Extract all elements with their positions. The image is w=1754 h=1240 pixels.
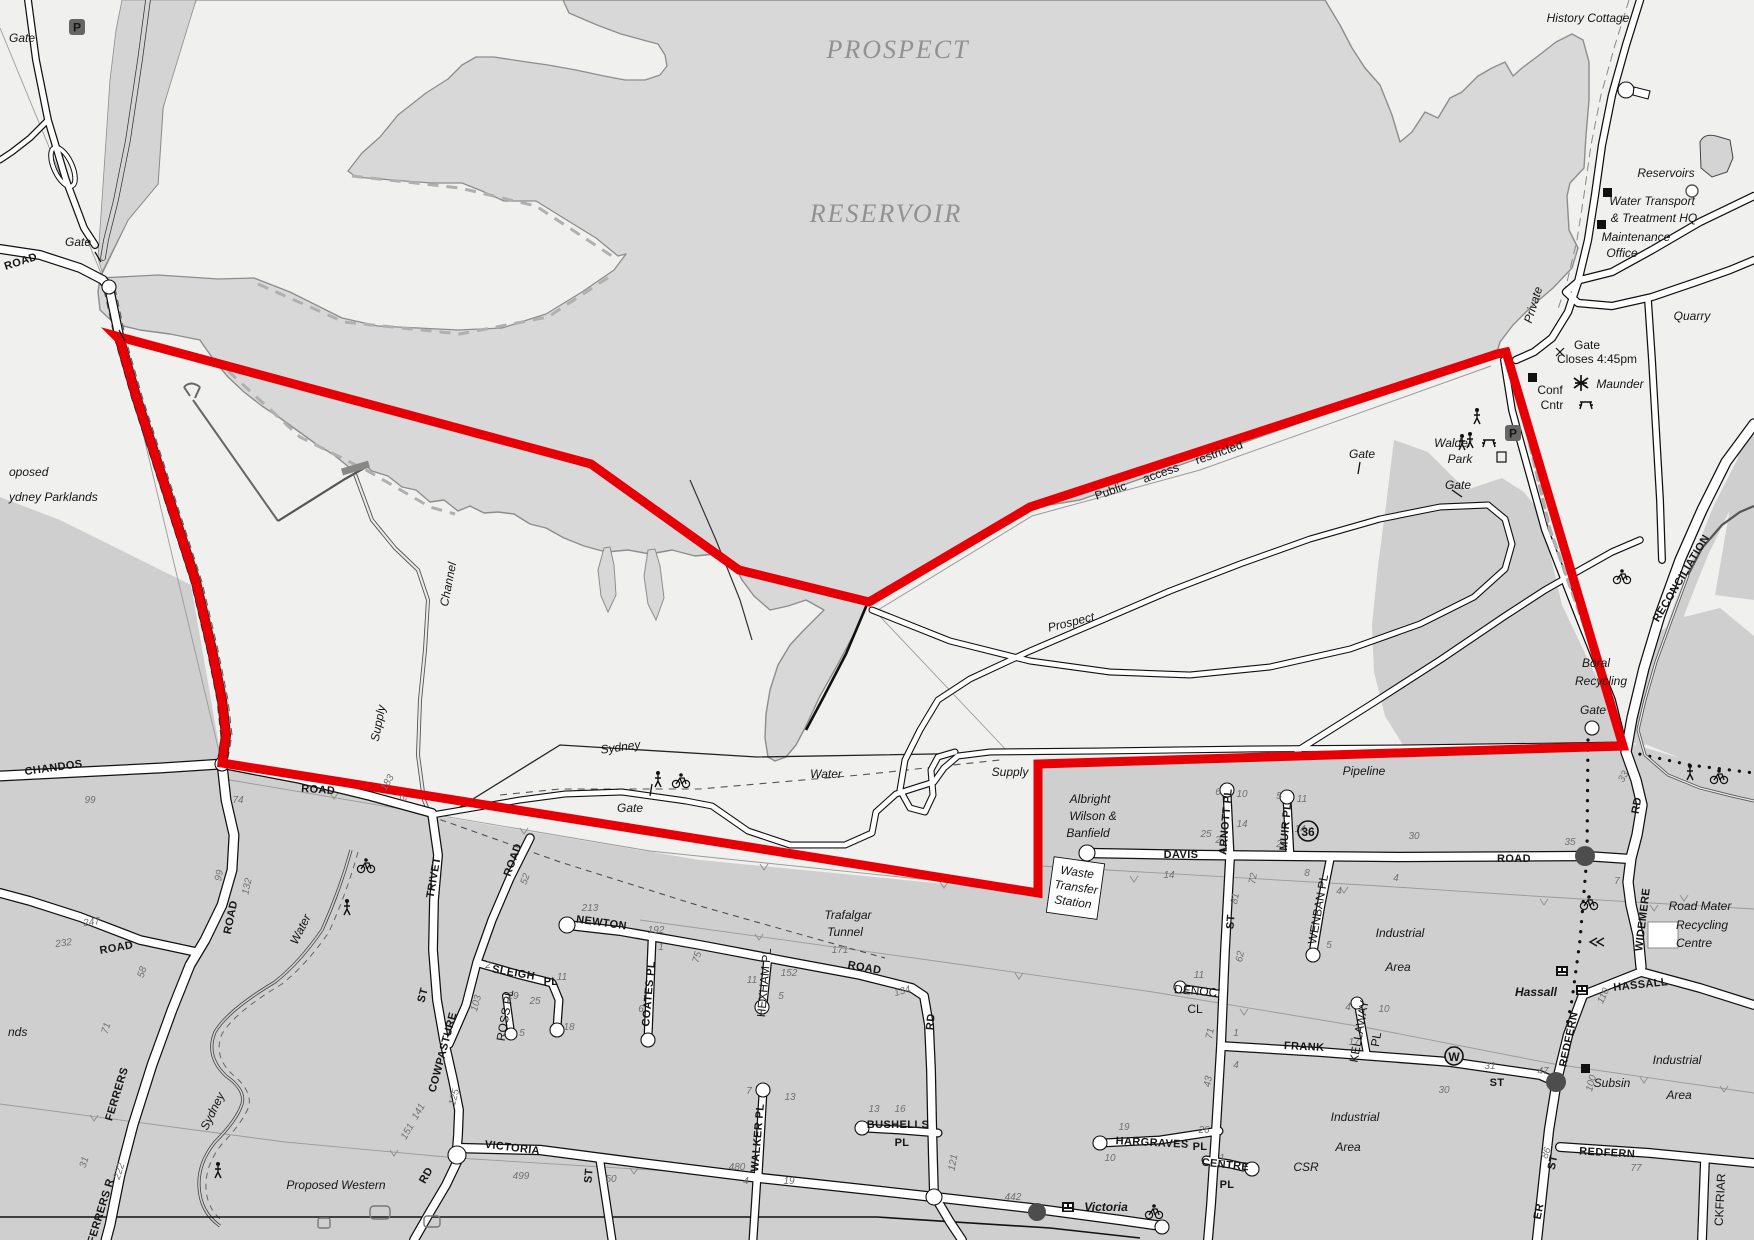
svg-text:ST: ST bbox=[1490, 1077, 1505, 1089]
svg-text:19: 19 bbox=[1118, 1122, 1130, 1133]
svg-text:10: 10 bbox=[1378, 1004, 1390, 1015]
svg-text:Park: Park bbox=[1448, 452, 1474, 466]
svg-text:nds: nds bbox=[8, 1025, 27, 1039]
svg-text:36: 36 bbox=[1301, 825, 1315, 839]
svg-text:11: 11 bbox=[1194, 970, 1204, 981]
svg-text:13: 13 bbox=[784, 1092, 796, 1103]
svg-text:Gate: Gate bbox=[1580, 703, 1606, 717]
svg-text:Maunder: Maunder bbox=[1596, 377, 1644, 391]
svg-text:Office: Office bbox=[1606, 246, 1638, 260]
svg-text:Proposed Western: Proposed Western bbox=[286, 1178, 385, 1192]
svg-text:11: 11 bbox=[557, 972, 567, 983]
svg-text:Maintenance: Maintenance bbox=[1602, 230, 1671, 244]
svg-text:Road Mater: Road Mater bbox=[1669, 899, 1733, 913]
svg-text:RESERVOIR: RESERVOIR bbox=[809, 199, 962, 228]
svg-text:ROAD: ROAD bbox=[1497, 853, 1531, 865]
svg-text:4: 4 bbox=[1345, 1002, 1351, 1013]
svg-text:30: 30 bbox=[1438, 1085, 1450, 1096]
svg-text:11: 11 bbox=[1297, 794, 1307, 805]
svg-text:Walder: Walder bbox=[1434, 436, 1473, 450]
svg-text:47: 47 bbox=[1537, 1066, 1549, 1077]
svg-text:Area: Area bbox=[1334, 1140, 1361, 1154]
svg-text:13: 13 bbox=[868, 1104, 880, 1115]
svg-text:8: 8 bbox=[1304, 868, 1310, 879]
svg-text:Reservoirs: Reservoirs bbox=[1637, 166, 1694, 180]
svg-text:Hassall: Hassall bbox=[1515, 985, 1558, 999]
svg-text:31: 31 bbox=[1484, 1061, 1495, 1072]
svg-text:4: 4 bbox=[1393, 873, 1399, 884]
svg-text:14: 14 bbox=[1163, 870, 1175, 881]
svg-text:19: 19 bbox=[783, 1176, 795, 1187]
svg-text:Industrial: Industrial bbox=[1653, 1053, 1702, 1067]
svg-text:Victoria: Victoria bbox=[1084, 1200, 1128, 1214]
svg-text:Gate: Gate bbox=[1349, 447, 1375, 461]
svg-text:CSR: CSR bbox=[1293, 1160, 1319, 1174]
svg-text:1: 1 bbox=[658, 942, 664, 953]
svg-text:1: 1 bbox=[1233, 1028, 1239, 1039]
svg-text:26: 26 bbox=[1197, 1125, 1210, 1136]
svg-text:5: 5 bbox=[1326, 940, 1332, 951]
svg-text:PROSPECT: PROSPECT bbox=[825, 35, 969, 64]
svg-text:History Cottage: History Cottage bbox=[1547, 11, 1630, 25]
svg-text:oposed: oposed bbox=[9, 465, 49, 479]
svg-text:Water Transport: Water Transport bbox=[1609, 194, 1695, 208]
svg-text:442: 442 bbox=[1005, 1192, 1022, 1203]
svg-text:2: 2 bbox=[1275, 839, 1282, 850]
svg-text:50: 50 bbox=[605, 1174, 617, 1185]
svg-text:11: 11 bbox=[747, 975, 757, 986]
svg-text:Industrial: Industrial bbox=[1376, 926, 1425, 940]
svg-text:ROAD: ROAD bbox=[301, 783, 336, 797]
svg-text:Albright: Albright bbox=[1069, 792, 1111, 806]
svg-text:16: 16 bbox=[894, 1104, 906, 1115]
svg-text:Quarry: Quarry bbox=[1674, 309, 1712, 323]
svg-text:Recycling: Recycling bbox=[1575, 674, 1627, 688]
svg-text:Gate: Gate bbox=[617, 801, 643, 815]
svg-text:CL: CL bbox=[1187, 1002, 1203, 1016]
svg-text:CKFRIAR: CKFRIAR bbox=[1712, 1173, 1729, 1227]
svg-text:192: 192 bbox=[648, 925, 665, 936]
svg-text:Supply: Supply bbox=[992, 765, 1030, 779]
svg-text:Cntr: Cntr bbox=[1541, 398, 1564, 412]
svg-text:18: 18 bbox=[563, 1022, 575, 1033]
svg-text:2: 2 bbox=[484, 960, 491, 971]
svg-text:Gate: Gate bbox=[9, 31, 35, 45]
svg-text:10: 10 bbox=[1236, 789, 1248, 800]
svg-text:Tunnel: Tunnel bbox=[827, 925, 863, 939]
svg-text:480: 480 bbox=[729, 1162, 746, 1173]
svg-text:99: 99 bbox=[84, 795, 96, 806]
svg-text:Banfield: Banfield bbox=[1066, 826, 1110, 840]
svg-text:Industrial: Industrial bbox=[1331, 1110, 1380, 1124]
svg-text:PL: PL bbox=[1220, 1179, 1235, 1191]
svg-text:171: 171 bbox=[832, 945, 849, 956]
svg-text:PL: PL bbox=[895, 1137, 910, 1149]
svg-text:6: 6 bbox=[638, 1004, 644, 1015]
svg-text:ST: ST bbox=[1224, 914, 1237, 930]
svg-text:Area: Area bbox=[1665, 1088, 1692, 1102]
svg-text:& Treatment HQ: & Treatment HQ bbox=[1611, 211, 1697, 225]
svg-text:5: 5 bbox=[519, 1028, 525, 1039]
svg-text:74: 74 bbox=[232, 795, 244, 806]
svg-text:Boral: Boral bbox=[1582, 656, 1610, 670]
svg-text:Subsin: Subsin bbox=[1594, 1076, 1631, 1090]
svg-text:Closes 4:45pm: Closes 4:45pm bbox=[1557, 352, 1637, 366]
svg-text:ST: ST bbox=[582, 1168, 595, 1184]
svg-text:5: 5 bbox=[1276, 791, 1282, 802]
svg-text:4: 4 bbox=[743, 1176, 749, 1187]
svg-text:W: W bbox=[1448, 1050, 1460, 1064]
svg-text:FRANK: FRANK bbox=[1284, 1040, 1325, 1054]
svg-text:499: 499 bbox=[513, 1171, 530, 1182]
svg-text:2: 2 bbox=[1214, 835, 1221, 846]
svg-text:RD: RD bbox=[924, 1013, 937, 1031]
svg-text:10: 10 bbox=[1104, 1153, 1116, 1164]
svg-text:5: 5 bbox=[778, 991, 784, 1002]
svg-text:Wilson &: Wilson & bbox=[1069, 809, 1116, 823]
svg-text:4: 4 bbox=[1336, 886, 1342, 897]
svg-text:4: 4 bbox=[1233, 1060, 1239, 1071]
svg-text:Conf: Conf bbox=[1537, 383, 1563, 397]
svg-text:DAVIS: DAVIS bbox=[1164, 849, 1199, 861]
svg-text:14: 14 bbox=[1236, 819, 1248, 830]
svg-text:35: 35 bbox=[1564, 837, 1576, 848]
svg-text:PL: PL bbox=[1193, 1141, 1208, 1153]
svg-text:ydney Parklands: ydney Parklands bbox=[8, 490, 98, 504]
svg-text:77: 77 bbox=[1630, 1163, 1642, 1174]
svg-text:Recycling: Recycling bbox=[1676, 918, 1728, 932]
svg-text:6: 6 bbox=[1215, 787, 1221, 798]
svg-text:BUSHELLS: BUSHELLS bbox=[867, 1119, 929, 1131]
svg-text:25: 25 bbox=[1199, 829, 1212, 840]
svg-text:Pipeline: Pipeline bbox=[1343, 764, 1386, 778]
svg-text:152: 152 bbox=[781, 968, 798, 979]
svg-text:Water: Water bbox=[810, 767, 843, 781]
svg-text:7: 7 bbox=[746, 1086, 752, 1097]
svg-text:Gate: Gate bbox=[65, 235, 91, 249]
svg-text:213: 213 bbox=[581, 903, 599, 914]
svg-text:PL: PL bbox=[1368, 1031, 1384, 1048]
svg-text:Area: Area bbox=[1384, 960, 1411, 974]
svg-text:Trafalgar: Trafalgar bbox=[824, 908, 872, 922]
svg-text:25: 25 bbox=[528, 996, 541, 1007]
svg-text:81: 81 bbox=[1229, 892, 1242, 905]
svg-text:30: 30 bbox=[1408, 831, 1420, 842]
svg-text:71: 71 bbox=[1204, 1027, 1217, 1040]
svg-text:Gate: Gate bbox=[1445, 478, 1471, 492]
svg-text:Gate: Gate bbox=[1574, 338, 1600, 352]
svg-text:7: 7 bbox=[1614, 876, 1620, 887]
svg-text:Centre: Centre bbox=[1676, 936, 1712, 950]
